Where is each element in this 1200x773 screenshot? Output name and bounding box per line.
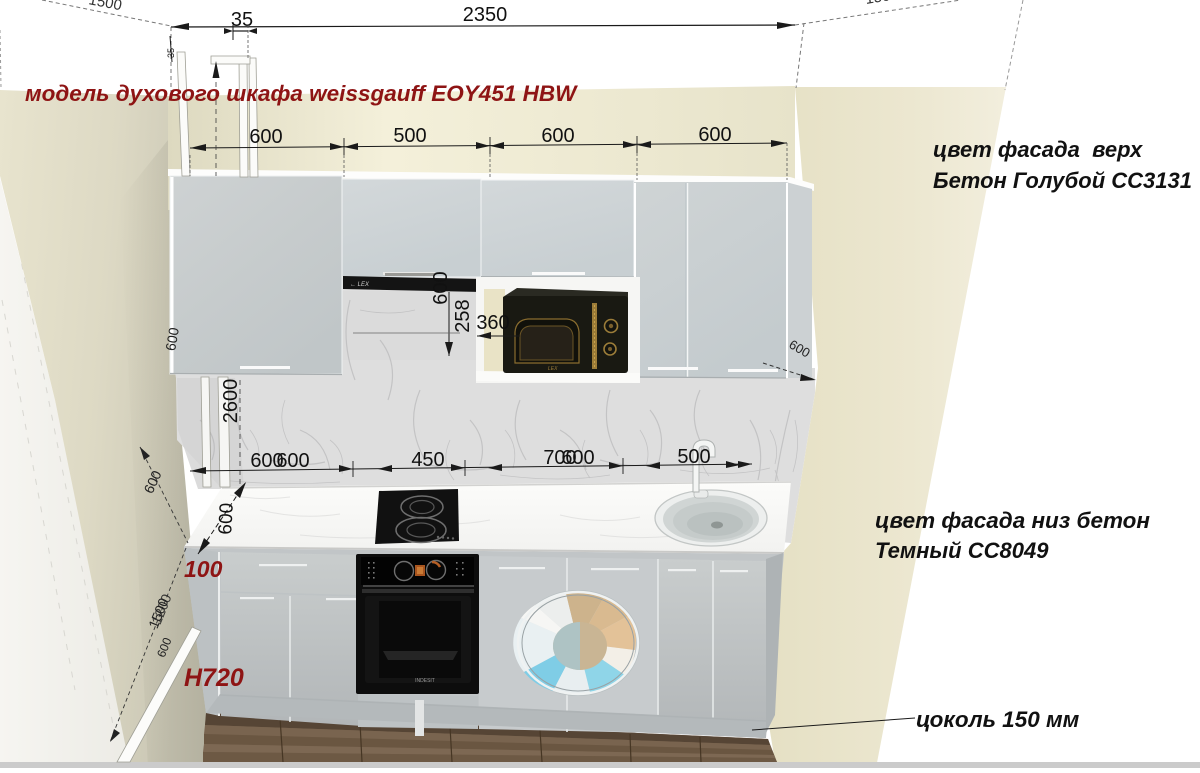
svg-text:цвет фасада верх: цвет фасада верх: [933, 137, 1143, 162]
svg-text:LEX: LEX: [548, 366, 558, 372]
svg-text:100: 100: [184, 556, 223, 582]
svg-text:35: 35: [231, 9, 253, 31]
svg-text:модель духового шкафа weissgau: модель духового шкафа weissgauff EOY451 …: [25, 81, 578, 106]
svg-text:2350: 2350: [463, 4, 508, 26]
svg-text:Бетон Голубой СС3131: Бетон Голубой СС3131: [933, 168, 1192, 193]
svg-text:INDESIT: INDESIT: [415, 678, 435, 684]
svg-text:258: 258: [452, 299, 474, 332]
svg-text:Темный СС8049: Темный СС8049: [875, 538, 1049, 563]
svg-text:600: 600: [541, 125, 574, 147]
svg-text:600: 600: [561, 447, 594, 469]
svg-text:360: 360: [476, 312, 509, 334]
svg-text:600: 600: [249, 126, 282, 148]
svg-text:600: 600: [276, 450, 309, 472]
svg-text:цоколь 150 мм: цоколь 150 мм: [916, 707, 1080, 732]
svg-text:600: 600: [698, 124, 731, 146]
svg-text:450: 450: [411, 449, 444, 471]
svg-text:2600: 2600: [220, 379, 242, 424]
svg-text:600: 600: [215, 502, 238, 535]
svg-text:500: 500: [677, 446, 710, 468]
svg-text:← LEX: ← LEX: [350, 282, 370, 288]
svg-text:цвет фасада низ бетон: цвет фасада низ бетон: [875, 508, 1150, 533]
svg-text:500: 500: [393, 125, 426, 147]
svg-text:H720: H720: [184, 664, 244, 692]
